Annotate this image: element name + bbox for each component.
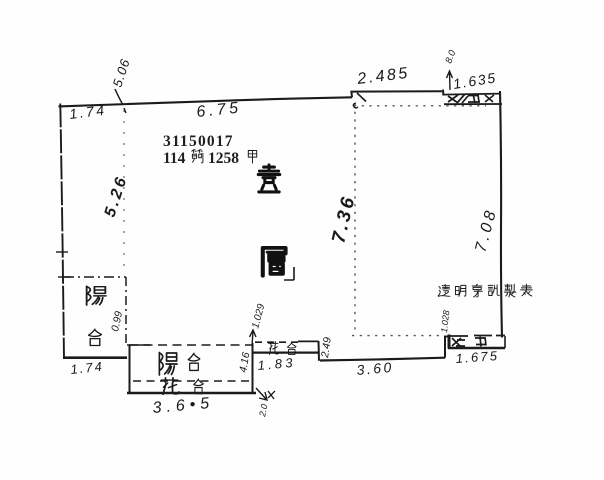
svg-text:8.0: 8.0: [443, 48, 458, 65]
svg-text:1.029: 1.029: [250, 302, 267, 329]
svg-text:3.60: 3.60: [356, 359, 395, 378]
svg-text:1.675: 1.675: [455, 348, 499, 366]
svg-text:1.74: 1.74: [70, 359, 105, 377]
svg-text:1.028: 1.028: [439, 310, 451, 333]
svg-text:114: 114: [163, 150, 186, 167]
svg-text:1.83: 1.83: [257, 355, 296, 373]
svg-text:0.99: 0.99: [109, 310, 125, 333]
svg-text:3.6•5: 3.6•5: [152, 395, 215, 417]
svg-text:1.74: 1.74: [68, 102, 107, 122]
svg-text:2.49: 2.49: [319, 336, 334, 359]
svg-text:4.16: 4.16: [237, 351, 252, 373]
svg-text:31150017: 31150017: [163, 133, 234, 150]
svg-text:5.06: 5.06: [110, 56, 133, 89]
svg-text:7.36: 7.36: [328, 193, 359, 245]
svg-text:6.75: 6.75: [196, 99, 243, 121]
svg-text:5.26: 5.26: [102, 173, 131, 219]
svg-text:1258: 1258: [208, 150, 239, 167]
svg-text:1.635: 1.635: [452, 69, 498, 92]
svg-text:2.0: 2.0: [257, 403, 270, 418]
svg-text:2.485: 2.485: [355, 65, 410, 88]
svg-text:7.08: 7.08: [472, 206, 500, 254]
